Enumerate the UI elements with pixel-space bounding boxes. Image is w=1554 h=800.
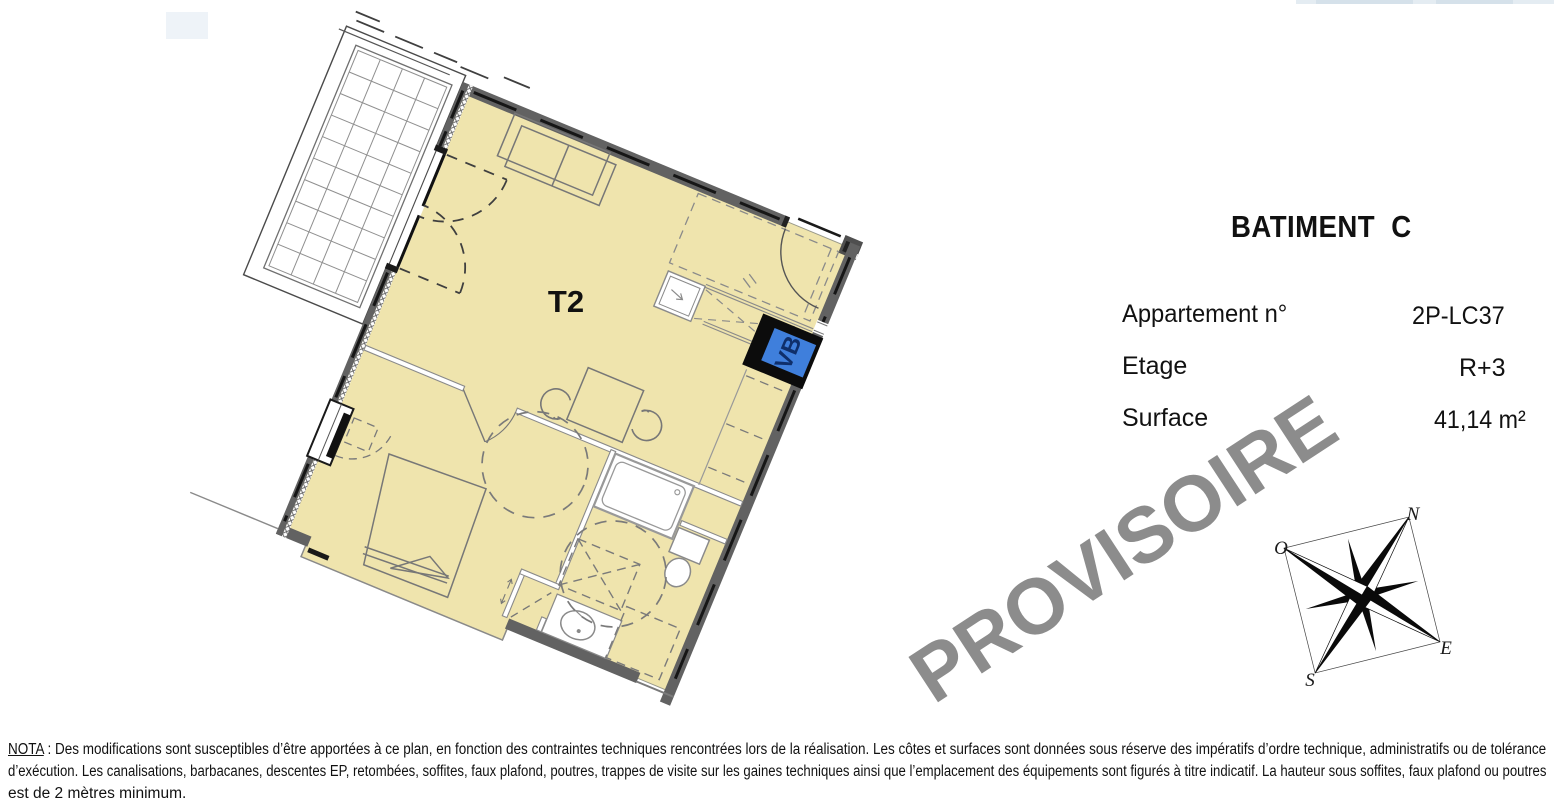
svg-text:E: E [1439, 638, 1452, 659]
svg-text:S: S [1305, 670, 1315, 691]
svg-text:O: O [1274, 538, 1288, 559]
svg-text:T2: T2 [548, 284, 584, 319]
svg-text:N: N [1406, 504, 1421, 525]
